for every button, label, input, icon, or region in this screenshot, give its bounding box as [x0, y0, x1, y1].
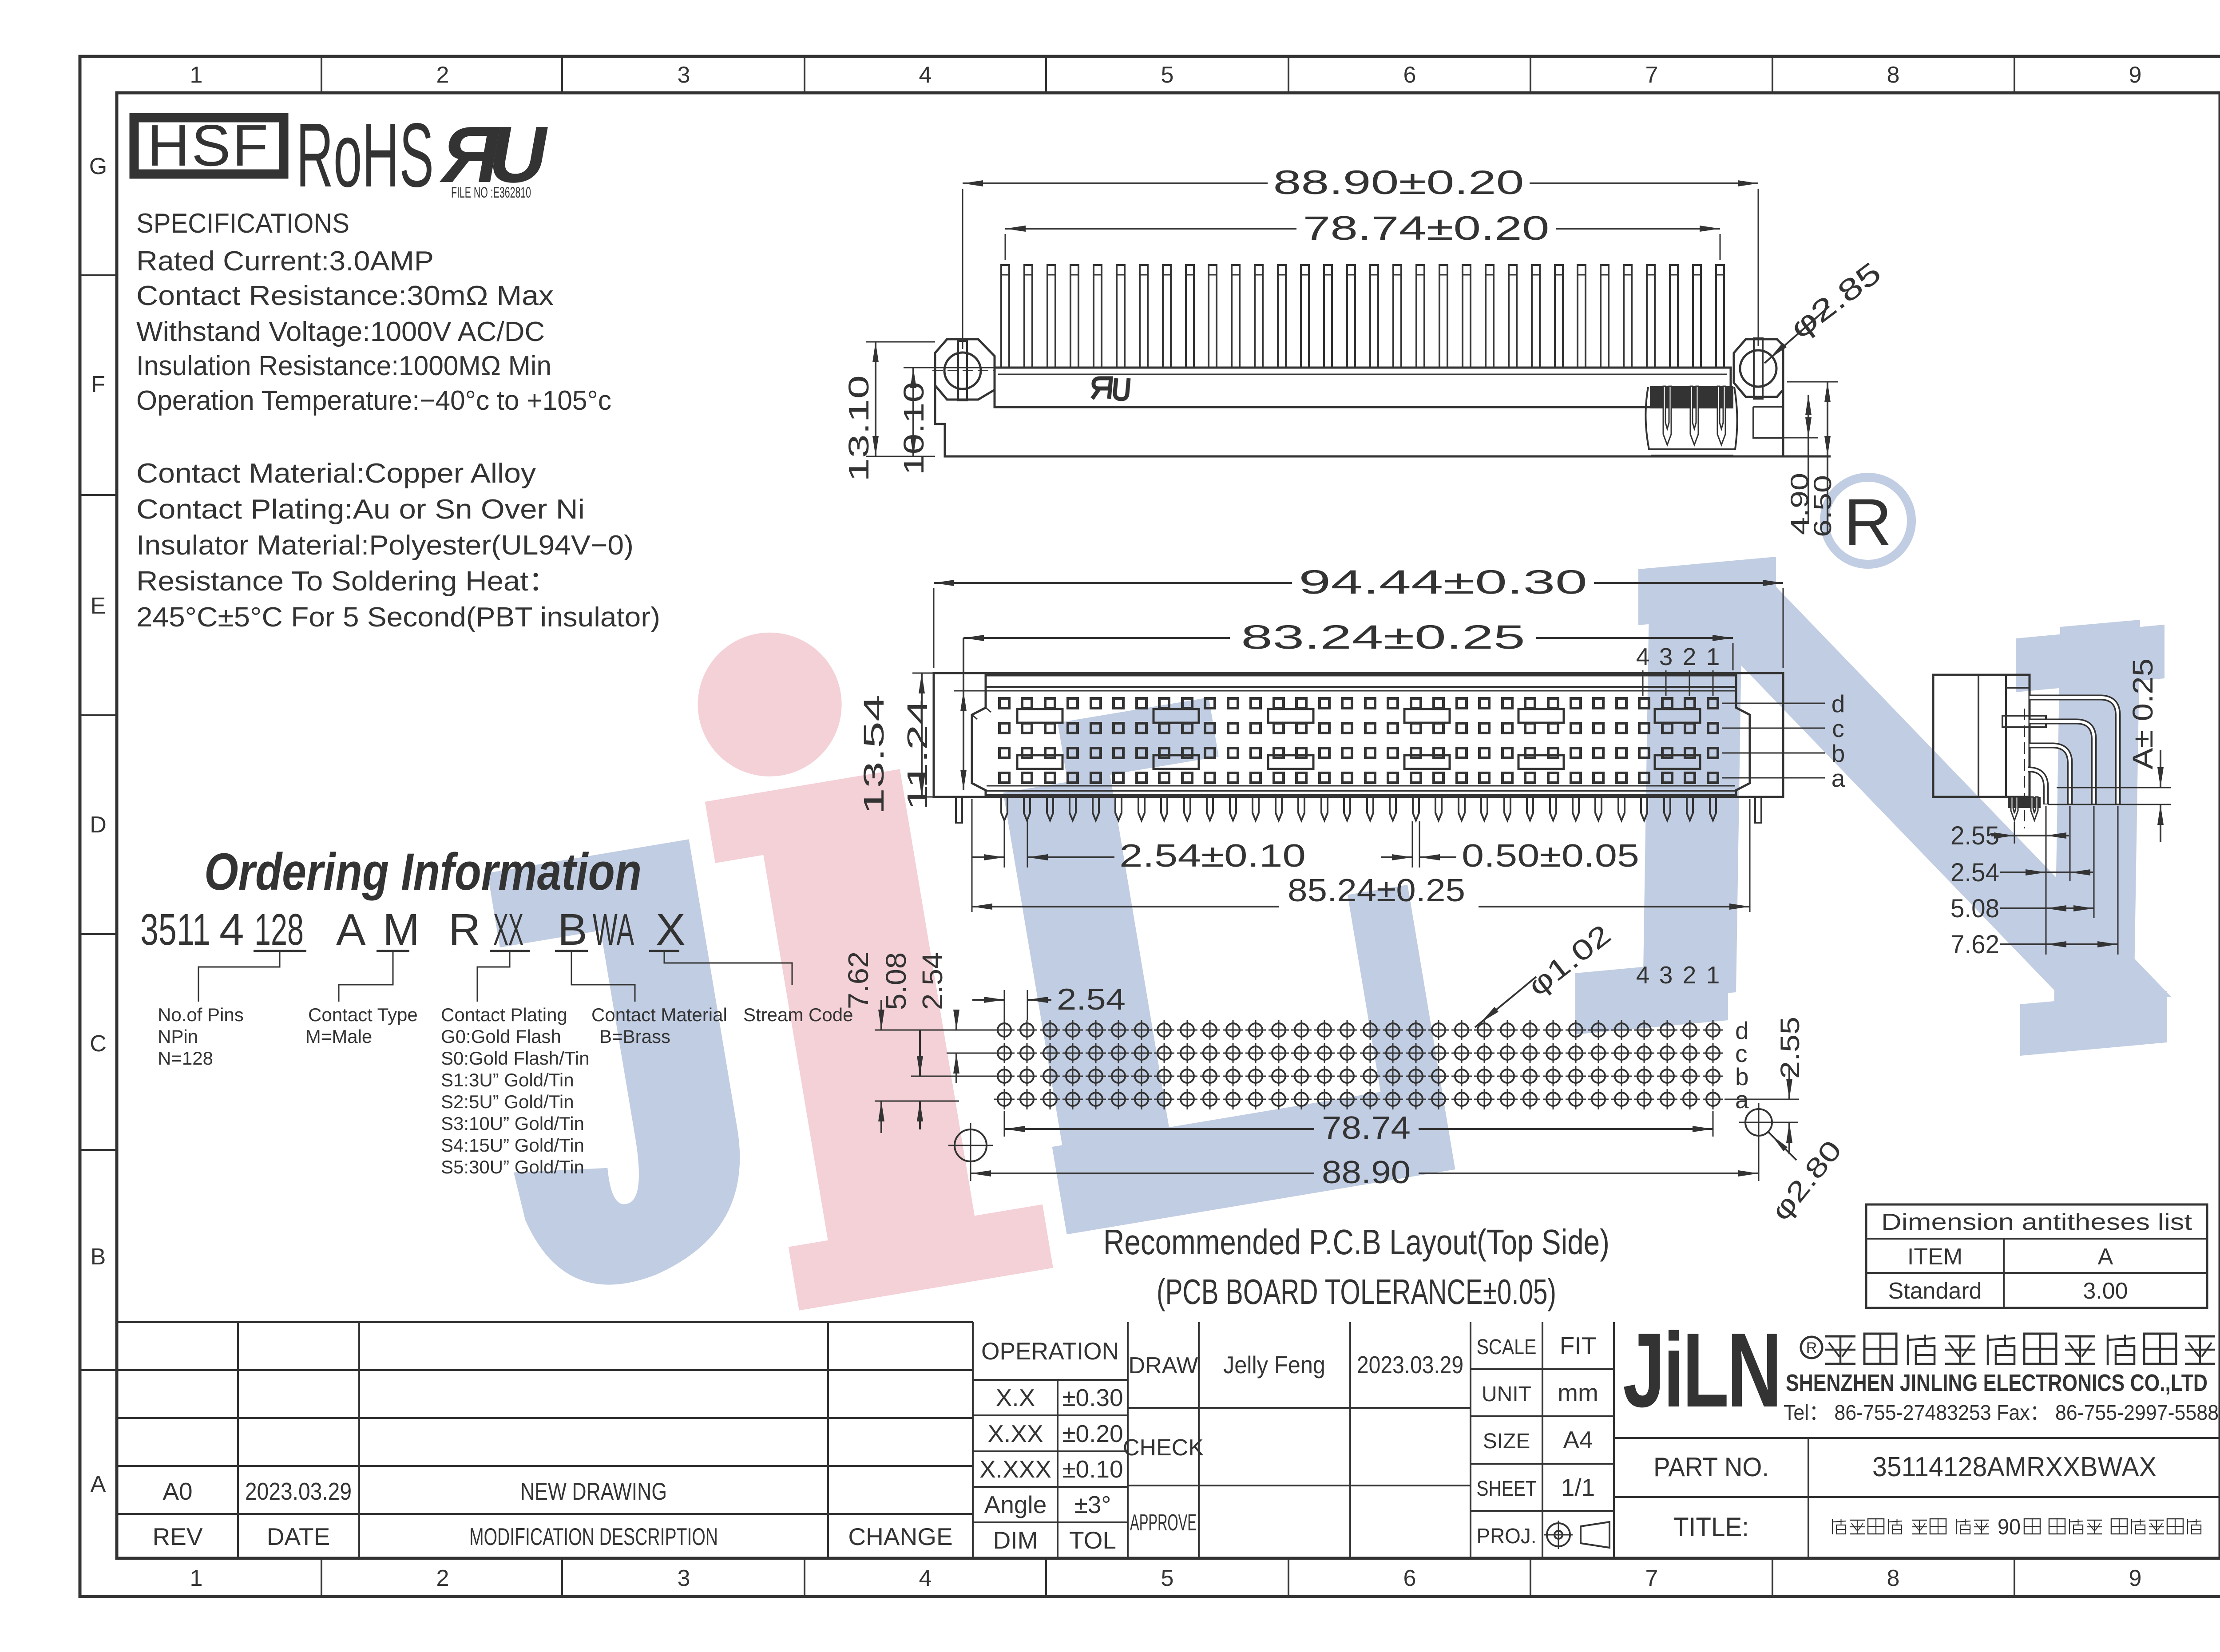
svg-text:3: 3: [1659, 643, 1673, 670]
svg-text:a: a: [1831, 765, 1845, 792]
svg-text:8: 8: [1887, 1565, 1900, 1591]
svg-text:1: 1: [190, 1565, 203, 1591]
svg-text:S5:30U” Gold/Tin: S5:30U” Gold/Tin: [441, 1157, 584, 1177]
svg-text:SHEET: SHEET: [1477, 1477, 1537, 1501]
svg-text:Contact Material:Copper Allo: Contact Material:Copper Alloy: [136, 458, 536, 489]
svg-text:WA: WA: [593, 905, 634, 955]
svg-text:85.24±0.25: 85.24±0.25: [1288, 873, 1465, 908]
svg-text:SCALE: SCALE: [1477, 1335, 1537, 1359]
svg-text:Operation Temperature:−40°c: Operation Temperature:−40°c to +105°c: [136, 385, 611, 416]
svg-text:6.50: 6.50: [1808, 475, 1836, 537]
svg-text:MODIFICATION DESCRIPTION: MODIFICATION DESCRIPTION: [469, 1523, 718, 1550]
svg-text:2.54±0.10: 2.54±0.10: [1119, 838, 1306, 874]
svg-text:c: c: [1832, 715, 1844, 742]
svg-text:S0:Gold Flash/Tin: S0:Gold Flash/Tin: [441, 1048, 590, 1069]
svg-text:R: R: [448, 905, 480, 955]
svg-text:9: 9: [2129, 1565, 2142, 1591]
svg-text:5.08: 5.08: [880, 952, 912, 1010]
svg-text:OPERATION: OPERATION: [981, 1337, 1119, 1365]
svg-text:APPROVE: APPROVE: [1130, 1510, 1197, 1536]
svg-text:S2:5U” Gold/Tin: S2:5U” Gold/Tin: [441, 1091, 574, 1112]
svg-text:±0.10: ±0.10: [1062, 1455, 1123, 1483]
svg-text:7: 7: [1645, 1565, 1658, 1591]
svg-text:PART NO.: PART NO.: [1653, 1452, 1769, 1482]
svg-text:Dimension antitheses list: Dimension antitheses list: [1881, 1209, 2192, 1235]
svg-text:SIZE: SIZE: [1483, 1430, 1530, 1453]
svg-text:128: 128: [254, 905, 304, 955]
svg-text:X.X: X.X: [996, 1384, 1035, 1411]
svg-text:N=128: N=128: [158, 1048, 213, 1069]
svg-text:78.74: 78.74: [1322, 1110, 1411, 1146]
svg-text:HSF: HSF: [147, 113, 270, 178]
svg-text:X: X: [656, 905, 686, 955]
svg-text:CHECK: CHECK: [1123, 1435, 1204, 1461]
svg-text:8: 8: [1887, 62, 1900, 88]
svg-text:7.62: 7.62: [1950, 930, 1999, 959]
svg-text:Stream Code: Stream Code: [743, 1004, 853, 1025]
svg-text:78.74±0.20: 78.74±0.20: [1303, 210, 1550, 247]
svg-text:1: 1: [190, 62, 203, 88]
svg-text:3.00: 3.00: [2083, 1278, 2128, 1304]
svg-text:2.55: 2.55: [1775, 1017, 1805, 1079]
svg-text:Standard: Standard: [1888, 1278, 1982, 1304]
svg-text:7: 7: [1645, 62, 1658, 88]
svg-text:13.10: 13.10: [843, 375, 875, 482]
svg-text:3511: 3511: [140, 905, 210, 955]
svg-text:Rated Current:3.0AMP: Rated Current:3.0AMP: [136, 246, 434, 277]
svg-text:B: B: [558, 905, 587, 955]
svg-text:No.of Pins: No.of Pins: [158, 1004, 244, 1025]
svg-text:4: 4: [1636, 643, 1650, 670]
svg-text:3: 3: [1659, 961, 1673, 989]
svg-text:5: 5: [1161, 1565, 1174, 1591]
svg-text:G: G: [89, 154, 107, 179]
svg-text:A: A: [336, 905, 366, 955]
svg-text:NEW DRAWING: NEW DRAWING: [520, 1478, 667, 1505]
svg-text:2.55: 2.55: [1950, 821, 1999, 850]
svg-text:R: R: [1844, 485, 1892, 559]
svg-text:FILE NO :E362810: FILE NO :E362810: [451, 184, 531, 201]
svg-text:PROJ.: PROJ.: [1477, 1525, 1537, 1548]
svg-text:X.XX: X.XX: [987, 1420, 1043, 1447]
svg-text:G0:Gold Flash: G0:Gold Flash: [441, 1026, 561, 1047]
svg-text:2: 2: [1683, 643, 1697, 670]
svg-text:90: 90: [1998, 1514, 2021, 1539]
svg-text:7.62: 7.62: [842, 951, 874, 1009]
svg-text:A0: A0: [163, 1478, 192, 1505]
svg-text:88.90±0.20: 88.90±0.20: [1273, 164, 1524, 202]
svg-text:M=Male: M=Male: [305, 1026, 373, 1047]
svg-text:DRAW: DRAW: [1129, 1353, 1198, 1379]
svg-text:Resistance To Soldering Hea: Resistance To Soldering Heat：: [136, 566, 558, 597]
svg-text:245°C±5°C For 5 Second(PBT: 245°C±5°C For 5 Second(PBT insulator): [136, 602, 660, 633]
svg-text:Ordering Information: Ordering Information: [204, 843, 642, 901]
svg-text:S4:15U” Gold/Tin: S4:15U” Gold/Tin: [441, 1135, 584, 1156]
svg-text:4: 4: [919, 1565, 932, 1591]
svg-text:TITLE:: TITLE:: [1673, 1512, 1749, 1542]
svg-text:2023.03.29: 2023.03.29: [1357, 1351, 1463, 1379]
svg-text:R: R: [1806, 1339, 1817, 1356]
svg-text:XX: XX: [493, 905, 523, 955]
svg-text:JiLN: JiLN: [1623, 1311, 1780, 1429]
svg-text:3: 3: [678, 1565, 690, 1591]
svg-text:TOL: TOL: [1069, 1526, 1116, 1554]
svg-text:Contact Plating:Au or Sn O: Contact Plating:Au or Sn Over Ni: [136, 494, 585, 525]
svg-text:A± 0.25: A± 0.25: [2127, 658, 2159, 769]
svg-text:2: 2: [436, 1565, 449, 1591]
svg-text:6: 6: [1403, 62, 1416, 88]
svg-text:Recommended P.C.B Layout(Top: Recommended P.C.B Layout(Top Side): [1103, 1222, 1609, 1262]
svg-text:S1:3U” Gold/Tin: S1:3U” Gold/Tin: [441, 1070, 574, 1090]
svg-text:10.10: 10.10: [898, 382, 930, 475]
svg-text:b: b: [1831, 740, 1845, 767]
svg-text:Insulator Material:Polyester(: Insulator Material:Polyester(UL94V−0): [136, 530, 634, 561]
svg-text:C: C: [90, 1031, 107, 1057]
svg-text:Withstand Voltage:1000V AC/D: Withstand Voltage:1000V AC/DC: [136, 317, 545, 347]
svg-text:±0.30: ±0.30: [1062, 1384, 1123, 1411]
svg-text:11.24: 11.24: [901, 699, 933, 810]
svg-text:Angle: Angle: [984, 1491, 1047, 1518]
svg-text:A4: A4: [1563, 1426, 1593, 1454]
svg-text:FIT: FIT: [1560, 1332, 1596, 1359]
svg-text:1/1: 1/1: [1561, 1474, 1595, 1501]
svg-text:M: M: [383, 905, 420, 955]
svg-text:NPin: NPin: [158, 1026, 198, 1047]
svg-text:DATE: DATE: [267, 1523, 330, 1550]
svg-text:2.54: 2.54: [916, 952, 948, 1010]
svg-text:F: F: [91, 372, 105, 397]
svg-text:D: D: [90, 812, 107, 838]
svg-text:6: 6: [1403, 1565, 1416, 1591]
svg-text:4: 4: [1636, 961, 1650, 989]
svg-text:5: 5: [1161, 62, 1174, 88]
svg-text:3: 3: [678, 62, 690, 88]
svg-text:UNIT: UNIT: [1482, 1383, 1531, 1406]
svg-text:1: 1: [1706, 643, 1720, 670]
svg-text:S3:10U” Gold/Tin: S3:10U” Gold/Tin: [441, 1113, 584, 1134]
svg-text:Contact Resistance:30mΩ Max: Contact Resistance:30mΩ Max: [136, 281, 554, 311]
svg-text:(PCB BOARD TOLERANCE±0.05): (PCB BOARD TOLERANCE±0.05): [1157, 1272, 1556, 1311]
svg-text:Contact Type: Contact Type: [308, 1004, 418, 1025]
svg-text:B: B: [91, 1244, 106, 1270]
svg-text:REV: REV: [152, 1523, 202, 1550]
svg-text:SHENZHEN JINLING ELECTRONICS C: SHENZHEN JINLING ELECTRONICS CO.,LTD: [1786, 1370, 2208, 1396]
svg-text:9: 9: [2129, 62, 2142, 88]
svg-text:±3°: ±3°: [1074, 1491, 1111, 1518]
svg-text:Insulation Resistance:1000MΩ: Insulation Resistance:1000MΩ Min: [136, 351, 551, 381]
svg-text:A: A: [91, 1471, 106, 1497]
svg-text:13.54: 13.54: [858, 695, 890, 815]
svg-text:DIM: DIM: [993, 1526, 1038, 1554]
svg-text:4: 4: [219, 905, 244, 955]
svg-text:mm: mm: [1558, 1379, 1598, 1406]
svg-text:5.08: 5.08: [1950, 894, 1999, 923]
svg-text:Contact Material: Contact Material: [591, 1004, 727, 1025]
svg-text:4: 4: [919, 62, 932, 88]
svg-text:Contact Plating: Contact Plating: [441, 1004, 567, 1025]
svg-text:Jelly Feng: Jelly Feng: [1223, 1351, 1325, 1379]
svg-text:ITEM: ITEM: [1907, 1244, 1962, 1270]
svg-text:RoHS: RoHS: [296, 104, 434, 206]
svg-text:B=Brass: B=Brass: [599, 1026, 670, 1047]
svg-text:Tel： 86-755-27483253 Fax： 86-: Tel： 86-755-27483253 Fax： 86-755-2997-55…: [1784, 1401, 2219, 1425]
svg-text:88.90: 88.90: [1322, 1155, 1411, 1190]
svg-text:0.50±0.05: 0.50±0.05: [1462, 838, 1639, 874]
svg-text:CHANGE: CHANGE: [848, 1523, 952, 1550]
svg-text:±0.20: ±0.20: [1062, 1420, 1123, 1447]
svg-text:2023.03.29: 2023.03.29: [245, 1478, 352, 1505]
svg-text:E: E: [91, 593, 106, 619]
svg-text:1: 1: [1706, 961, 1720, 989]
svg-text:2: 2: [1683, 961, 1697, 989]
svg-text:2.54: 2.54: [1950, 858, 1999, 887]
svg-text:2.54: 2.54: [1057, 982, 1126, 1016]
svg-text:SPECIFICATIONS: SPECIFICATIONS: [136, 208, 349, 239]
svg-text:A: A: [2098, 1244, 2113, 1270]
svg-text:d: d: [1831, 690, 1845, 717]
svg-text:2: 2: [436, 62, 449, 88]
svg-text:83.24±0.25: 83.24±0.25: [1241, 618, 1525, 656]
svg-text:X.XXX: X.XXX: [979, 1455, 1051, 1483]
svg-text:94.44±0.30: 94.44±0.30: [1299, 563, 1587, 601]
svg-text:35114128AMRXXBWAX: 35114128AMRXXBWAX: [1872, 1452, 2157, 1482]
